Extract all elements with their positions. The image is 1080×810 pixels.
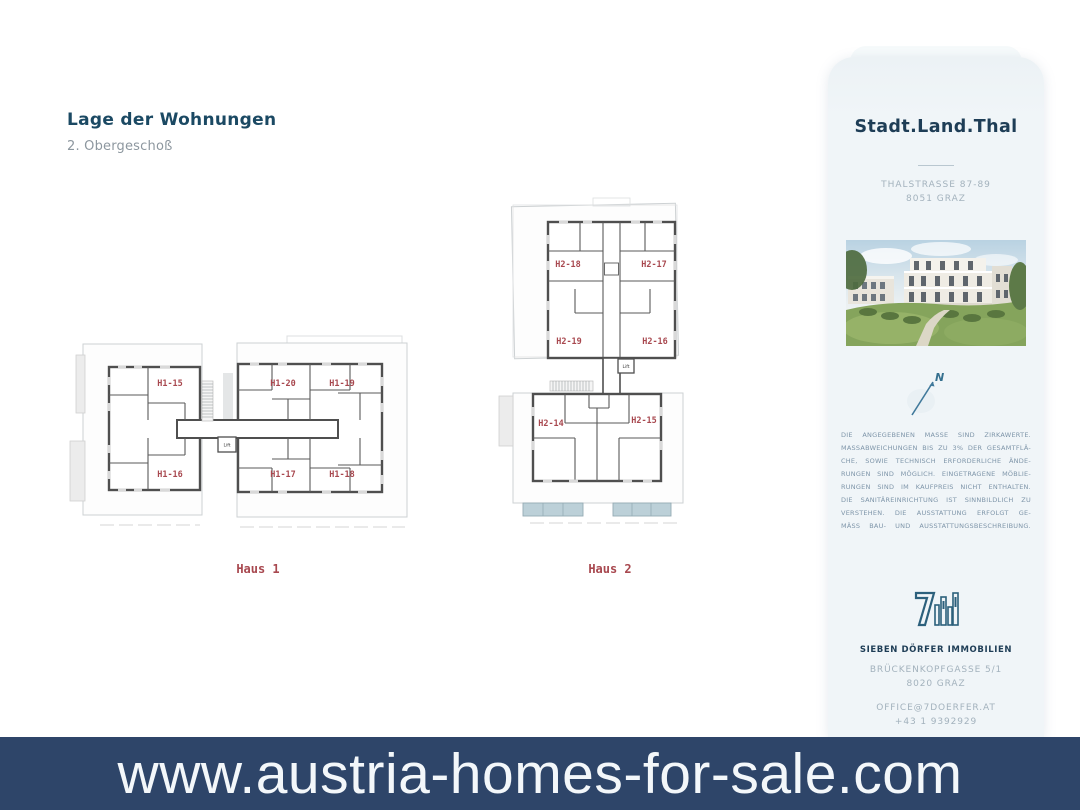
haus1-caption: Haus 1	[208, 562, 308, 576]
unit-label-h2-17: H2-17	[641, 260, 667, 270]
agency-address-line1: BRÜCKENKOPFGASSE 5/1	[828, 663, 1044, 677]
haus1-stairs	[202, 381, 213, 421]
unit-label-h2-14: H2-14	[538, 419, 564, 429]
project-address-line2: 8051 GRAZ	[828, 192, 1044, 206]
svg-text:Lift: Lift	[622, 364, 629, 370]
project-address-line1: THALSTRASSE 87-89	[828, 178, 1044, 192]
building-photo	[846, 240, 1026, 346]
svg-text:N: N	[935, 371, 944, 384]
brochure-page: Lage der Wohnungen 2. Obergeschoß	[0, 0, 1080, 810]
brand-title: Stadt.Land.Thal	[828, 117, 1044, 137]
haus2-floorplan: Lift H2-18	[485, 193, 695, 527]
haus1-corridor	[177, 420, 338, 438]
haus2-caption: Haus 2	[560, 562, 660, 576]
agency-email: OFFICE@7DOERFER.AT	[828, 701, 1044, 715]
unit-label-h1-17: H1-17	[270, 470, 296, 480]
haus2-lift: Lift	[618, 359, 634, 373]
website-url: www.austria-homes-for-sale.com	[118, 741, 963, 807]
unit-label-h1-19: H1-19	[329, 379, 355, 389]
haus2-stairs	[550, 381, 593, 391]
brand-divider	[918, 165, 954, 166]
agency-address-line2: 8020 GRAZ	[828, 677, 1044, 691]
project-address: THALSTRASSE 87-89 8051 GRAZ	[828, 178, 1044, 206]
svg-text:Lift: Lift	[223, 443, 230, 449]
unit-label-h1-16: H1-16	[157, 470, 183, 480]
agency-address: BRÜCKENKOPFGASSE 5/1 8020 GRAZ	[828, 663, 1044, 691]
website-banner: www.austria-homes-for-sale.com	[0, 737, 1080, 810]
sidebar-card: Stadt.Land.Thal THALSTRASSE 87-89 8051 G…	[828, 57, 1044, 737]
haus1-floorplan: Lift H1-15 H1-16 H1-20 H1-19 H1-17 H1-18	[60, 333, 420, 563]
page-title: Lage der Wohnungen	[67, 110, 276, 130]
unit-label-h1-15: H1-15	[157, 379, 183, 389]
compass-north-icon: N	[902, 367, 950, 423]
haus2-balconies	[523, 503, 671, 516]
unit-label-h2-15: H2-15	[631, 416, 657, 426]
agency-logo-icon	[912, 583, 960, 633]
disclaimer-text: DIE ANGEGEBENEN MASSE SIND ZIRKAWERTE. M…	[841, 429, 1031, 533]
agency-name: SIEBEN DÖRFER IMMOBILIEN	[828, 645, 1044, 655]
agency-contact: OFFICE@7DOERFER.AT +43 1 9392929	[828, 701, 1044, 729]
haus1-lift: Lift	[218, 437, 236, 452]
unit-label-h2-16: H2-16	[642, 337, 668, 347]
unit-label-h2-19: H2-19	[556, 337, 582, 347]
unit-label-h1-20: H1-20	[270, 379, 296, 389]
unit-label-h1-18: H1-18	[329, 470, 355, 480]
agency-phone: +43 1 9392929	[828, 715, 1044, 729]
unit-label-h2-18: H2-18	[555, 260, 581, 270]
page-subtitle: 2. Obergeschoß	[67, 139, 173, 154]
